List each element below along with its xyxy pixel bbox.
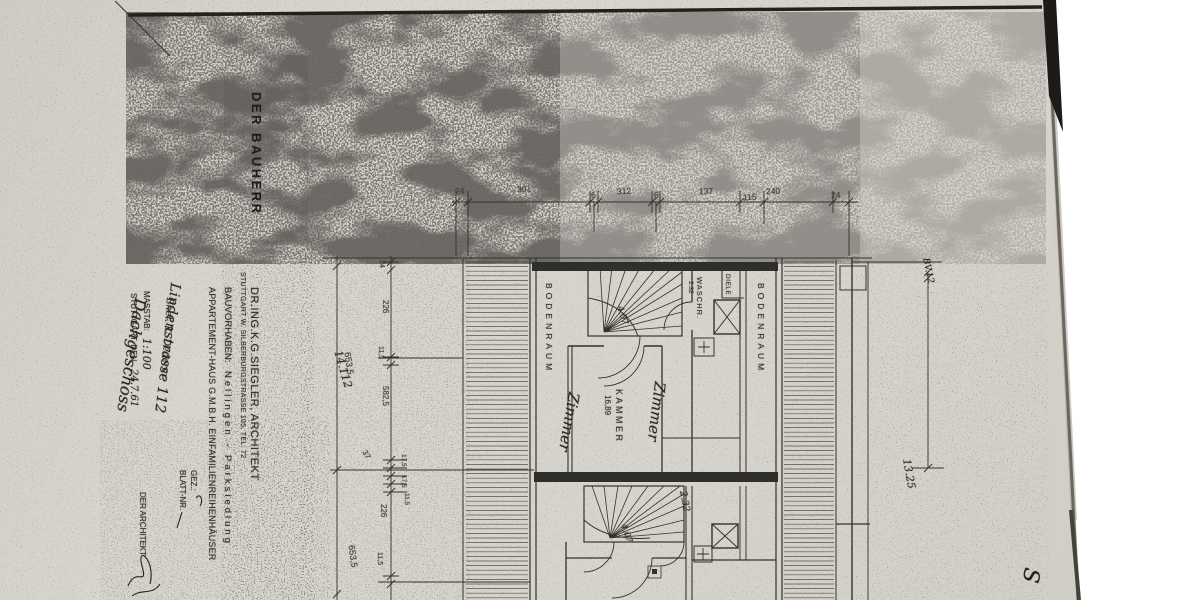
dim-left-inner-6: 17,5 xyxy=(400,475,407,488)
dim-left-inner-1: 226 xyxy=(381,300,390,313)
dim-left-inner-0: 24 xyxy=(378,260,385,268)
titleblock-project: BAUVORHABEN: Nellingen - Parksiedlung xyxy=(222,287,233,600)
date-value-handwritten: 24.7.61 xyxy=(128,369,139,407)
dim-top-3: 312 xyxy=(617,186,632,197)
dim-top-2: 6 xyxy=(591,190,596,200)
room-waschraum-area: 2.32 xyxy=(687,281,694,294)
blatt-nr-label: BLATT-NR. xyxy=(178,470,187,510)
scale-value-handwritten: 1:100 xyxy=(140,338,153,370)
titleblock-address: STUTTGART W. SILBERBURGSTRASSE 105, TEL.… xyxy=(239,272,246,600)
dim-left-inner-7: 11,5 xyxy=(403,493,410,505)
room-diele: DIELE xyxy=(724,274,731,295)
dim-top-4: 6 xyxy=(654,190,659,200)
dim-left-inner-9: 11,5 xyxy=(376,552,383,565)
der-architekt-label: DER ARCHITEKT xyxy=(138,492,147,600)
dim-top-7: 240 xyxy=(766,186,781,197)
project-value: Nellingen - Parksiedlung xyxy=(222,371,233,546)
stamp-der-bauherr: DER BAUHERR xyxy=(249,92,264,216)
room-bodenraum-left: BODENRAUM xyxy=(544,283,554,374)
dim-left-inner-3: 582,5 xyxy=(381,386,390,406)
dim-left-inner-5: 17,5 xyxy=(400,454,407,467)
date-row: STUTTGART, DEN 24.7.61 xyxy=(128,293,139,407)
dim-top-0: 24 xyxy=(455,186,465,196)
gez-label: GEZ.: xyxy=(189,470,198,491)
date-label: STUTTGART, DEN xyxy=(129,293,138,361)
dim-left-inner-2: 11,5 xyxy=(377,346,384,359)
scale-row: MASSTAB: 1:100 xyxy=(140,291,153,370)
dim-top-1: 301 xyxy=(517,184,532,195)
room-kammer-area: 16,89 xyxy=(603,395,612,415)
room-waschraum: WASCHR. xyxy=(695,277,704,319)
titleblock-client: APPARTEMENT-HAUS G.M.B.H. EINFAMILIENREI… xyxy=(207,287,217,600)
project-label: BAUVORHABEN: xyxy=(222,287,233,363)
dim-left-inner-8: 226 xyxy=(379,504,388,517)
dim-top-6: 115 xyxy=(743,192,757,203)
scanned-floorplan-page: DER BAUHERR DR.ING.K.G.SIEGLER, ARCHITEK… xyxy=(0,0,1200,600)
dim-top-8: 24 xyxy=(831,190,841,200)
photocopy-noise xyxy=(0,0,1050,600)
titleblock-architect: DR.ING.K.G.SIEGLER, ARCHITEKT xyxy=(248,287,260,600)
room-kammer: KAMMER xyxy=(614,389,624,444)
dim-top-5: 137 xyxy=(699,186,714,197)
scale-label: MASSTAB: xyxy=(142,291,151,331)
room-bodenraum-right: BODENRAUM xyxy=(756,283,766,374)
